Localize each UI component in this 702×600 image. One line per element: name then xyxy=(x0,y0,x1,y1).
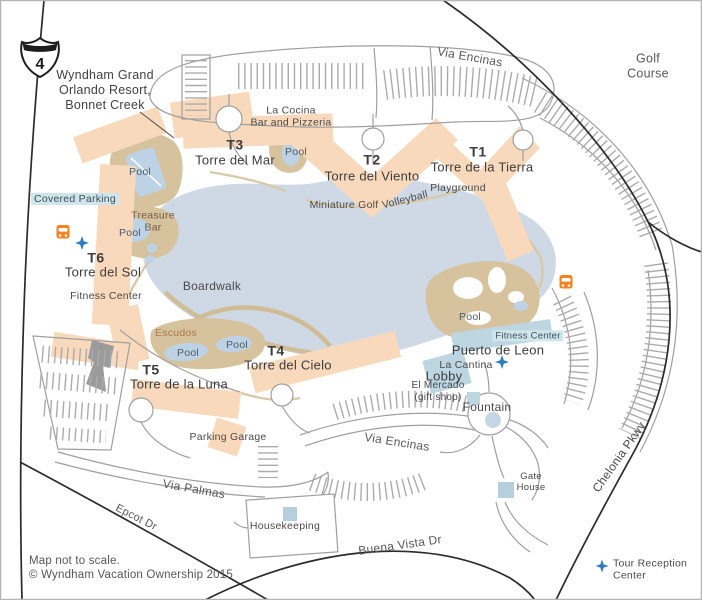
bus-stop-icon-west xyxy=(55,224,71,240)
svg-text:4: 4 xyxy=(36,56,45,73)
resort-map: 4 Wyndham Grand Orlando Resort, Bonnet xyxy=(0,0,702,600)
interstate-4-shield-icon: 4 xyxy=(20,34,60,80)
tour-reception-star-icon-west xyxy=(75,236,90,251)
legend-star-icon xyxy=(595,559,609,573)
housekeeping-building xyxy=(246,494,338,558)
map-canvas xyxy=(0,0,702,600)
bus-stop-icon-east xyxy=(558,274,574,290)
tour-reception-star-icon-east xyxy=(495,355,510,370)
